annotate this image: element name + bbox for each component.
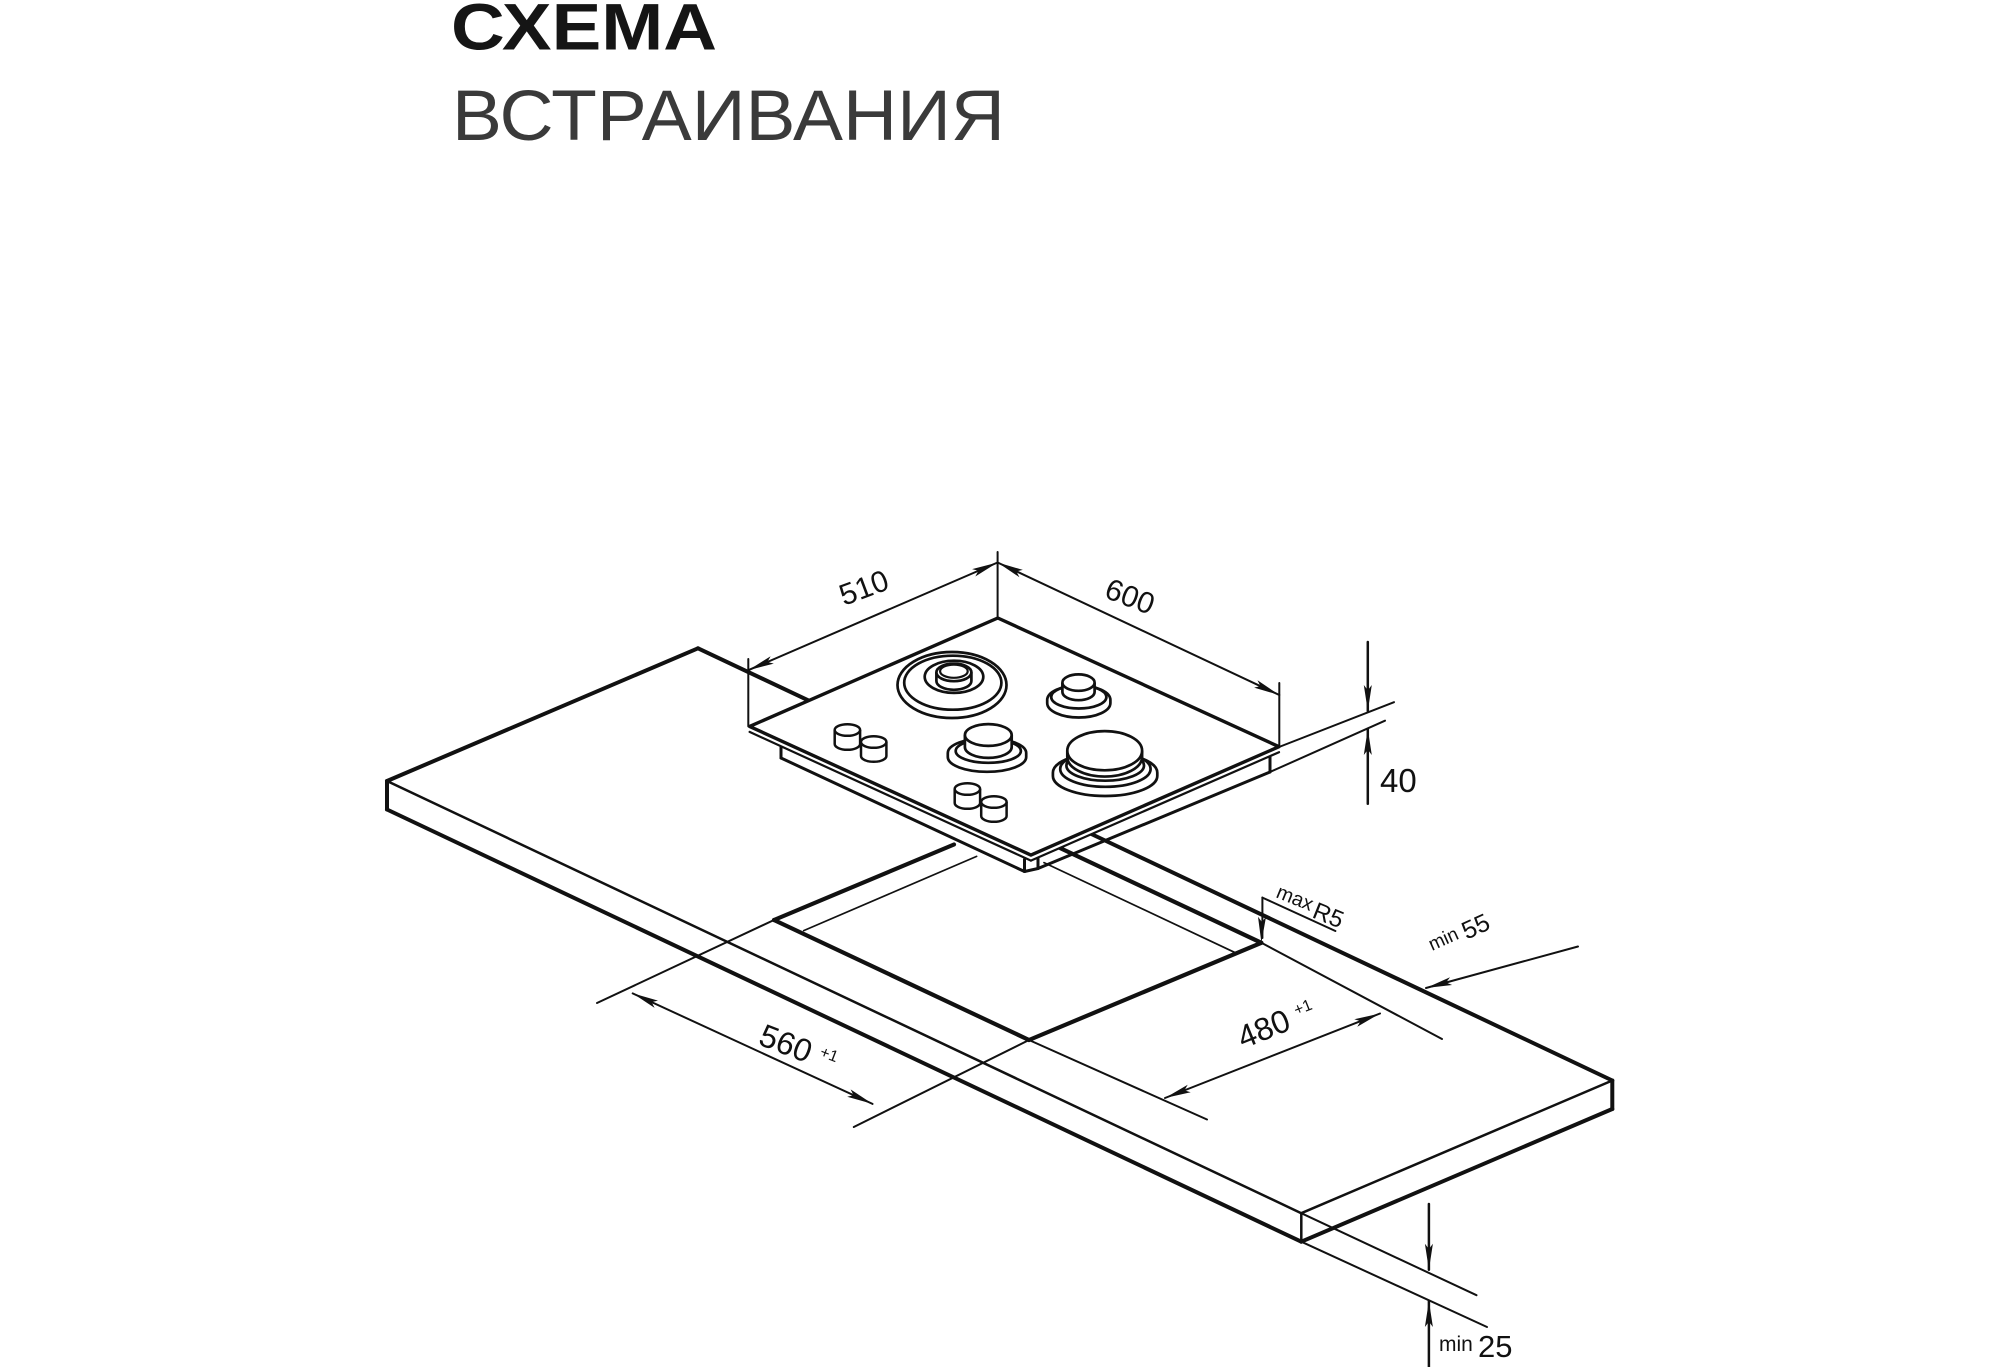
svg-text:560: 560 (754, 1017, 817, 1070)
svg-text:min: min (1439, 1333, 1473, 1356)
svg-text:R5: R5 (1309, 898, 1348, 935)
svg-text:40: 40 (1380, 762, 1417, 799)
svg-text:ВСТРАИВАНИЯ: ВСТРАИВАНИЯ (452, 77, 1005, 156)
svg-text:510: 510 (835, 564, 893, 612)
svg-text:min: min (1425, 924, 1462, 956)
svg-text:СХЕМА: СХЕМА (451, 0, 717, 64)
svg-text:+1: +1 (817, 1044, 840, 1066)
svg-text:max: max (1273, 881, 1316, 916)
svg-text:25: 25 (1478, 1329, 1512, 1364)
svg-text:55: 55 (1457, 908, 1494, 945)
